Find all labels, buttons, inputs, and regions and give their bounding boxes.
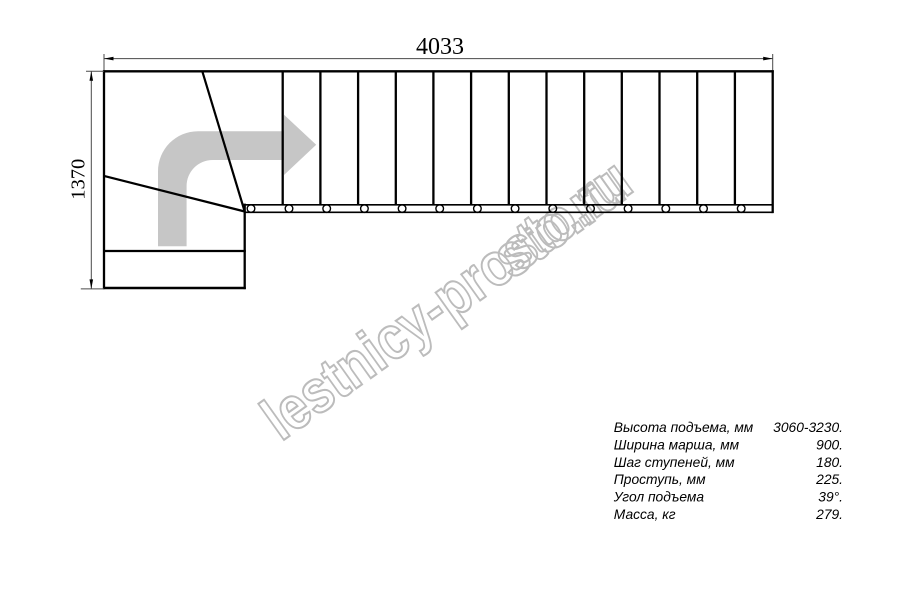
svg-text:279.: 279. [815,507,843,522]
svg-text:Высота подъема, мм: Высота подъема, мм [614,420,754,435]
svg-text:Шаг ступеней, мм: Шаг ступеней, мм [614,455,735,470]
svg-text:39°.: 39°. [818,490,843,505]
svg-text:3060-3230.: 3060-3230. [773,420,843,435]
svg-text:Угол подъема: Угол подъема [613,490,705,505]
svg-text:1370: 1370 [68,159,90,200]
svg-text:180.: 180. [816,455,843,470]
svg-text:Масса, кг: Масса, кг [614,507,676,522]
svg-text:225.: 225. [815,472,843,487]
svg-text:Проступь, мм: Проступь, мм [614,472,706,487]
svg-text:4033: 4033 [416,34,464,60]
svg-text:900.: 900. [816,437,843,452]
svg-text:Ширина марша, мм: Ширина марша, мм [614,437,740,452]
